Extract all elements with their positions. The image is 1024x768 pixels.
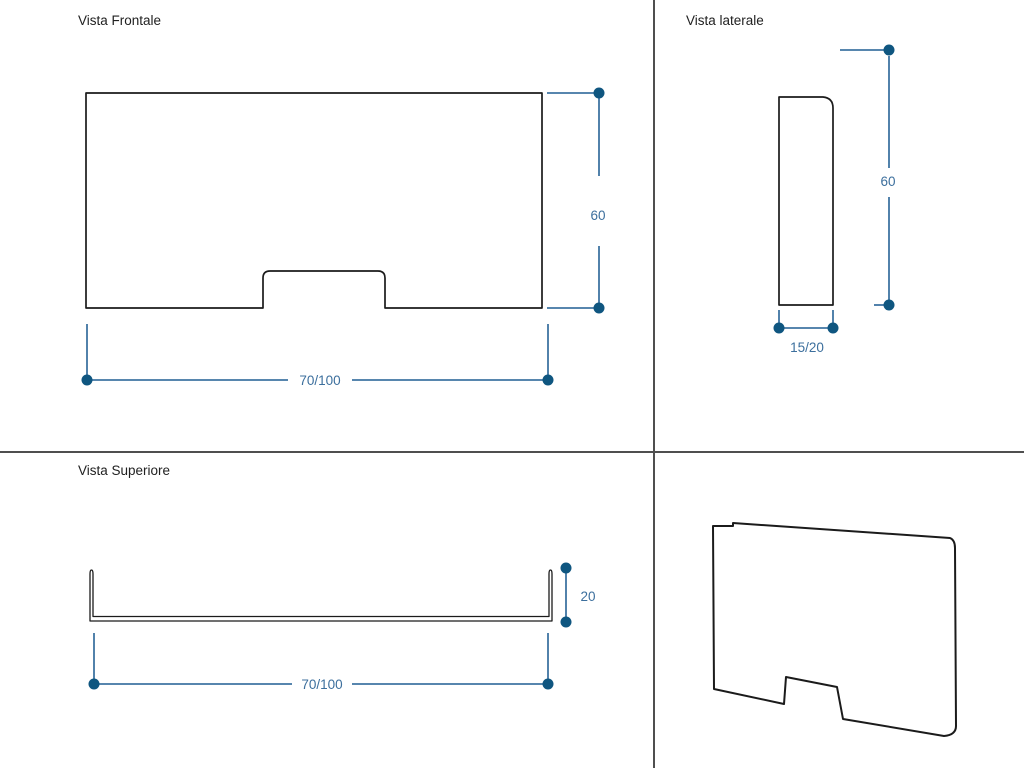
side-thickness-dimension: 15/20 [774, 310, 839, 355]
front-view-outline [86, 93, 542, 308]
top-width-label: 70/100 [301, 677, 342, 692]
technical-drawing-sheet: Vista Frontale 60 70/100 [0, 0, 1024, 768]
dimension-endpoint-dot [543, 679, 554, 690]
side-height-dimension: 60 [840, 45, 896, 311]
side-height-label: 60 [880, 174, 895, 189]
dimension-endpoint-dot [82, 375, 93, 386]
perspective-view [713, 523, 956, 736]
dimension-endpoint-dot [774, 323, 785, 334]
dimension-endpoint-dot [543, 375, 554, 386]
front-view: Vista Frontale 60 70/100 [78, 13, 606, 388]
side-view-title: Vista laterale [686, 13, 764, 28]
drawing-svg: Vista Frontale 60 70/100 [0, 0, 1024, 768]
front-width-label: 70/100 [299, 373, 340, 388]
side-view: Vista laterale 60 15/20 [686, 13, 896, 355]
top-view: Vista Superiore 20 70/100 [78, 463, 596, 692]
perspective-outline [713, 523, 956, 736]
dimension-endpoint-dot [594, 88, 605, 99]
top-view-title: Vista Superiore [78, 463, 170, 478]
top-depth-dimension: 20 [561, 563, 596, 628]
dimension-endpoint-dot [594, 303, 605, 314]
dimension-endpoint-dot [828, 323, 839, 334]
dimension-endpoint-dot [884, 45, 895, 56]
top-view-outline [90, 570, 552, 621]
dimension-endpoint-dot [89, 679, 100, 690]
side-view-outline [779, 97, 833, 305]
top-width-dimension: 70/100 [89, 633, 554, 692]
side-thickness-label: 15/20 [790, 340, 824, 355]
dimension-endpoint-dot [561, 563, 572, 574]
front-view-title: Vista Frontale [78, 13, 161, 28]
front-height-label: 60 [590, 208, 605, 223]
front-height-dimension: 60 [547, 88, 606, 314]
front-width-dimension: 70/100 [82, 324, 554, 388]
dimension-endpoint-dot [884, 300, 895, 311]
dimension-endpoint-dot [561, 617, 572, 628]
top-depth-label: 20 [580, 589, 595, 604]
